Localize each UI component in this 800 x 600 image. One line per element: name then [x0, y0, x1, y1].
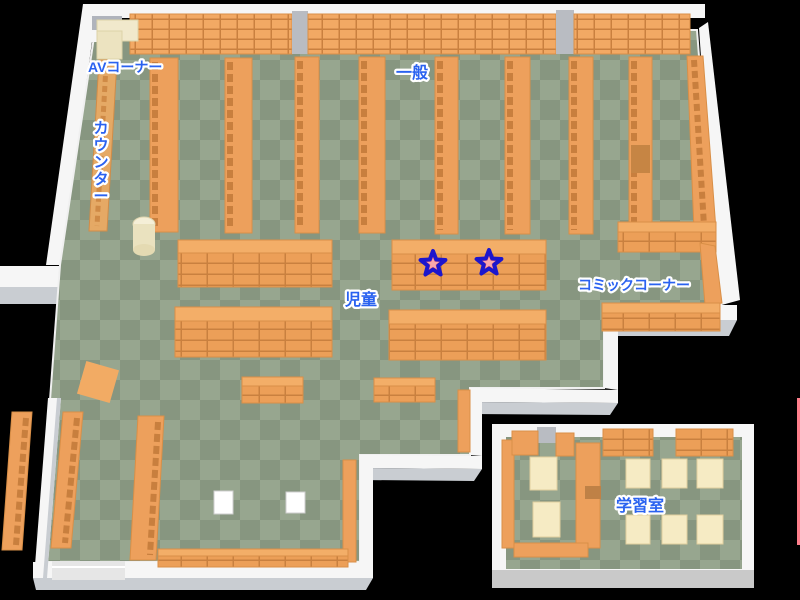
low-bookshelf	[158, 549, 348, 567]
white-box	[214, 491, 233, 514]
wall-bookshelf	[343, 460, 356, 562]
wall-pillar-2	[556, 10, 574, 54]
map-canvas[interactable]: AVコーナー 一般 カ ウ ン タ ー 児童 コミックコーナー 学習室	[0, 0, 800, 600]
bookshelf	[512, 431, 538, 455]
divider-gap	[585, 486, 601, 499]
study-desk	[697, 459, 723, 488]
bookshelf	[514, 543, 588, 557]
bookshelf	[556, 433, 574, 456]
bookshelf	[603, 429, 653, 456]
label-av-corner: AVコーナー	[88, 59, 162, 75]
entrance-door[interactable]	[52, 561, 125, 580]
library-floor-map: AVコーナー 一般 カ ウ ン タ ー 児童 コミックコーナー 学習室	[0, 0, 800, 600]
study-desk	[662, 515, 687, 544]
study-room-door-gap	[537, 427, 556, 443]
step-wall-s2-shade	[360, 468, 482, 481]
study-room-wall-shade	[492, 570, 754, 588]
white-box	[286, 492, 305, 513]
bookshelf-aisle	[435, 57, 458, 234]
low-bookshelf	[392, 240, 546, 290]
bookshelf-aisle	[225, 58, 252, 233]
wall-bookshelf	[458, 390, 470, 452]
low-bookshelf	[602, 303, 720, 331]
low-bookshelf	[178, 240, 332, 287]
entrance-door-line	[52, 566, 125, 568]
wall-pillar-1	[292, 11, 308, 54]
av-cabinet-2	[97, 31, 122, 59]
svg-text:タ: タ	[93, 171, 108, 188]
study-desk	[533, 502, 560, 537]
study-desk	[530, 457, 557, 490]
study-desk	[697, 515, 723, 544]
step-wall-e3	[360, 455, 373, 578]
svg-text:ウ: ウ	[93, 137, 108, 154]
svg-text:ン: ン	[93, 154, 108, 171]
step-wall-s1	[470, 388, 618, 403]
bookshelf	[676, 429, 733, 456]
label-comic-corner: コミックコーナー	[578, 277, 690, 293]
reading-bench	[242, 377, 303, 403]
spinner-rack-base	[133, 244, 155, 256]
wall-bookshelf	[502, 440, 514, 548]
wall-shelf-a	[130, 14, 292, 54]
study-desk	[626, 459, 650, 488]
low-bookshelf	[389, 310, 546, 360]
study-desk	[626, 515, 650, 544]
label-study-room: 学習室	[616, 496, 664, 515]
svg-text:カ: カ	[93, 120, 108, 137]
step-wall-s2	[360, 455, 482, 469]
bookshelf-gap	[631, 145, 650, 173]
bookshelf-aisle	[569, 57, 593, 234]
bookshelf-aisle	[150, 58, 178, 232]
step-wall-s1-shade	[470, 402, 618, 415]
bookshelf-aisle	[505, 57, 530, 234]
wall-shelf-c	[574, 14, 690, 54]
study-desk	[662, 459, 687, 488]
svg-text:ー: ー	[93, 188, 108, 205]
label-general: 一般	[396, 63, 428, 82]
bookshelf-aisle	[359, 57, 385, 233]
wall-shelf-b	[308, 14, 556, 54]
reading-bench	[374, 378, 435, 402]
label-children: 児童	[344, 290, 377, 309]
step-wall-e2	[470, 388, 482, 456]
label-counter: カ ウ ン タ ー	[93, 120, 108, 205]
bookshelf-aisle	[295, 57, 319, 233]
bookshelf-aisle	[629, 57, 652, 234]
low-bookshelf	[175, 307, 332, 357]
